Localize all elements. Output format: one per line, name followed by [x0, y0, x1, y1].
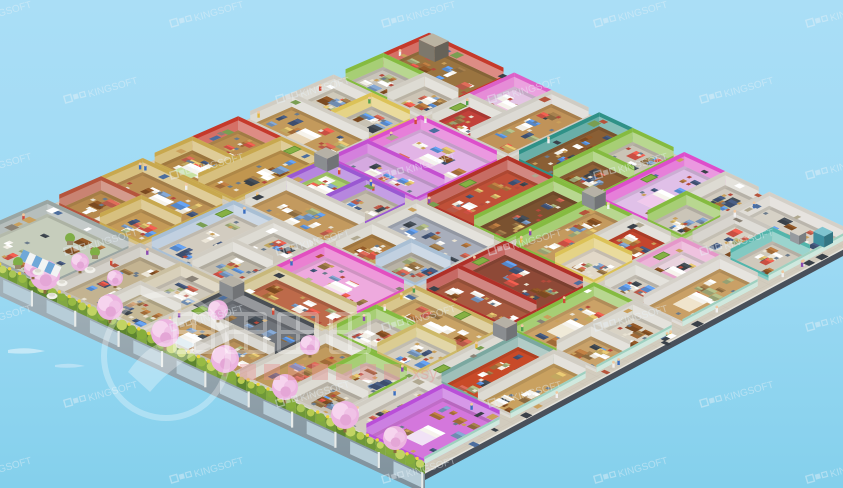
svg-text:xsy: xsy	[412, 364, 438, 383]
